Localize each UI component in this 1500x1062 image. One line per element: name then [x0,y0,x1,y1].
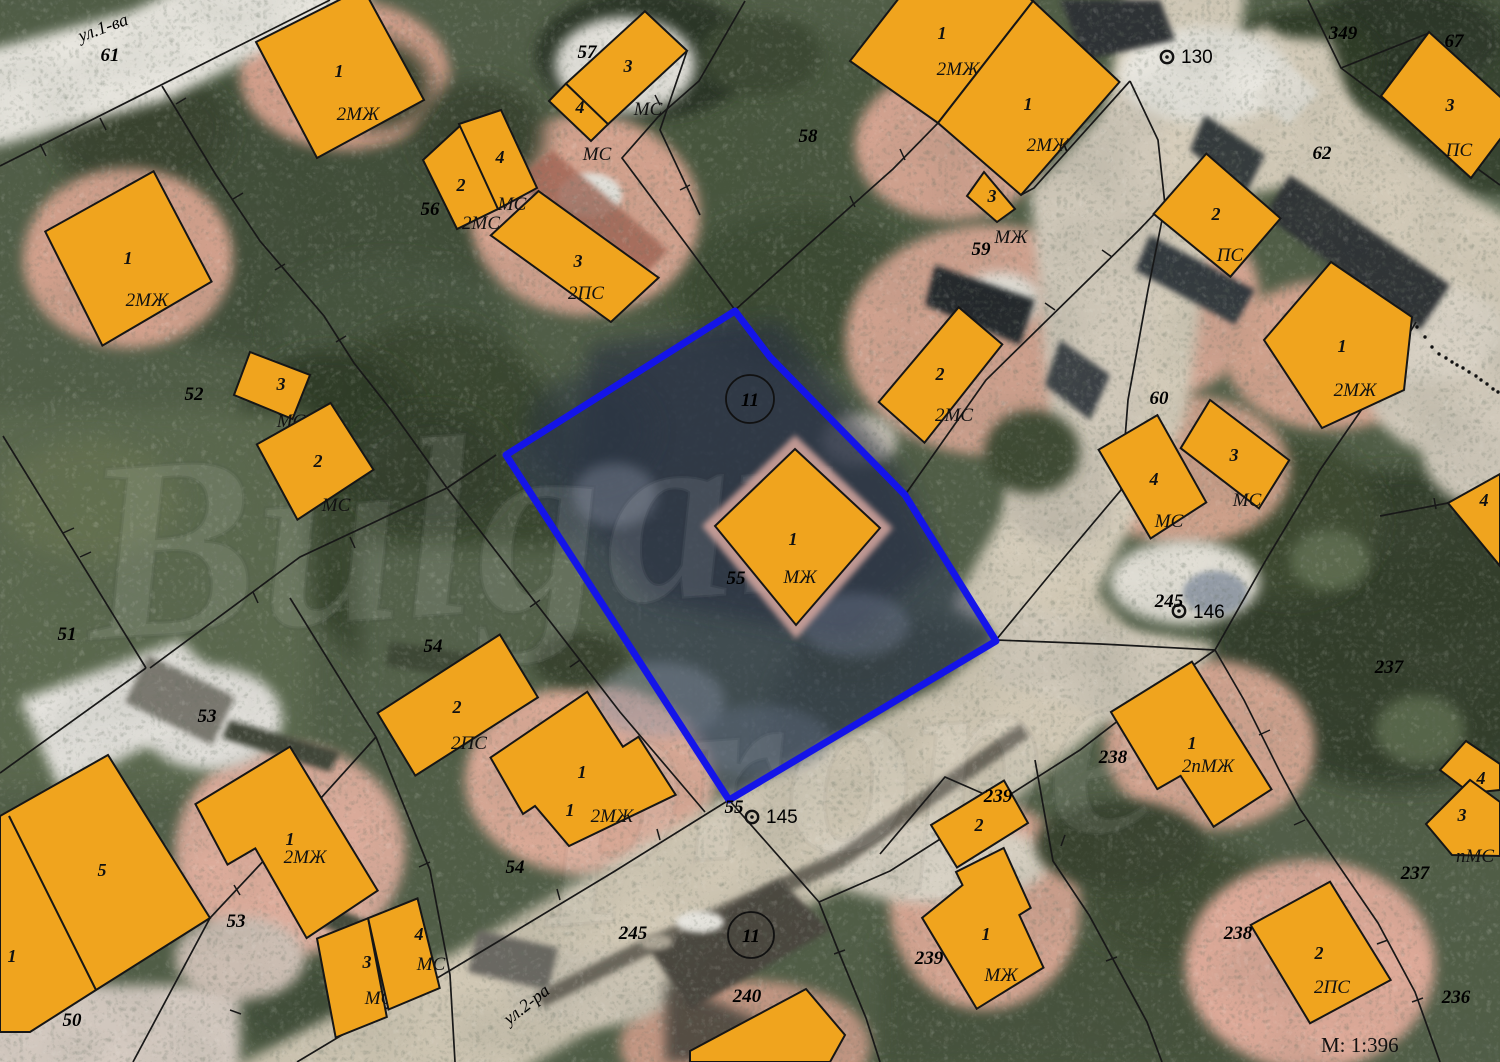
svg-text:3: 3 [276,374,286,394]
svg-text:11: 11 [741,390,759,411]
svg-text:1: 1 [938,23,947,43]
svg-text:4: 4 [414,924,424,944]
svg-text:1: 1 [982,924,991,944]
svg-text:62: 62 [1313,143,1333,164]
svg-text:53: 53 [198,706,217,727]
svg-text:3: 3 [1229,445,1239,465]
svg-text:2МС: 2МС [935,405,973,426]
svg-text:МС: МС [321,495,351,516]
svg-text:61: 61 [101,45,120,66]
svg-text:2МЖ: 2МЖ [1027,135,1071,156]
svg-text:1: 1 [124,248,133,268]
svg-text:240: 240 [732,986,762,1007]
svg-text:11: 11 [742,926,760,947]
svg-text:2МЖ: 2МЖ [1334,380,1378,401]
svg-text:60: 60 [1150,388,1170,409]
svg-text:5: 5 [98,860,107,880]
svg-text:52: 52 [185,384,205,405]
svg-text:МС: МС [1232,490,1262,511]
svg-text:ПС: ПС [1445,140,1473,161]
svg-text:1: 1 [1338,336,1347,356]
svg-text:2пМЖ: 2пМЖ [1182,756,1236,777]
svg-text:130: 130 [1181,47,1213,68]
svg-text:3: 3 [573,251,583,271]
svg-text:2МЖ: 2МЖ [337,104,381,125]
svg-text:МЖ: МЖ [993,227,1029,248]
svg-text:1: 1 [789,529,798,549]
svg-text:2: 2 [1314,943,1324,963]
svg-text:236: 236 [1441,987,1471,1008]
svg-text:2МЖ: 2МЖ [591,806,635,827]
svg-text:2: 2 [313,451,323,471]
svg-text:4: 4 [1149,469,1159,489]
svg-text:2: 2 [452,697,462,717]
svg-text:2: 2 [1211,204,1221,224]
svg-text:50: 50 [63,1010,83,1031]
svg-text:1: 1 [8,946,17,966]
svg-text:54: 54 [506,857,525,878]
svg-text:56: 56 [421,199,441,220]
svg-text:55: 55 [727,568,747,589]
svg-text:1: 1 [578,762,587,782]
svg-text:МС: МС [497,194,527,215]
svg-text:2МЖ: 2МЖ [126,290,170,311]
svg-text:67: 67 [1445,31,1466,52]
svg-text:54: 54 [424,636,443,657]
svg-text:4: 4 [575,97,585,117]
svg-text:239: 239 [983,786,1013,807]
svg-text:3: 3 [1445,95,1455,115]
svg-text:237: 237 [1374,657,1405,678]
svg-text:2: 2 [456,175,466,195]
svg-text:58: 58 [799,126,819,147]
svg-text:4: 4 [1479,490,1489,510]
svg-text:МЖ: МЖ [782,567,818,588]
svg-text:237: 237 [1400,863,1431,884]
svg-text:3: 3 [623,56,633,76]
svg-text:ПС: ПС [1216,245,1244,266]
svg-text:2: 2 [974,815,984,835]
svg-text:3: 3 [1457,805,1467,825]
svg-text:2: 2 [935,364,945,384]
svg-text:1: 1 [1188,733,1197,753]
svg-text:238: 238 [1223,923,1253,944]
svg-text:2ПС: 2ПС [1314,977,1350,998]
svg-text:МЖ: МЖ [983,965,1019,986]
svg-text:238: 238 [1098,747,1128,768]
svg-text:4: 4 [495,147,505,167]
svg-text:59: 59 [972,239,992,260]
svg-text:МС: МС [1154,511,1184,532]
svg-text:2ПС: 2ПС [568,283,604,304]
svg-text:2МЖ: 2МЖ [284,847,328,868]
svg-text:57: 57 [578,42,599,63]
svg-text:1: 1 [286,829,295,849]
svg-text:1: 1 [335,61,344,81]
svg-text:МС: МС [416,954,446,975]
svg-text:МС: МС [633,99,663,120]
svg-text:239: 239 [914,948,944,969]
svg-text:3: 3 [987,186,997,206]
svg-text:349: 349 [1328,23,1358,44]
svg-text:145: 145 [766,807,798,828]
svg-text:245: 245 [618,923,648,944]
svg-text:55: 55 [725,797,745,818]
svg-text:146: 146 [1193,602,1225,623]
svg-text:МС: МС [582,144,612,165]
svg-text:1: 1 [566,800,575,820]
svg-text:245: 245 [1154,591,1184,612]
svg-text:1: 1 [1024,94,1033,114]
svg-text:51: 51 [58,624,77,645]
svg-text:пМС: пМС [1456,846,1494,867]
svg-text:53: 53 [227,911,246,932]
svg-text:М: 1:396: М: 1:396 [1321,1033,1399,1057]
svg-text:2ПС: 2ПС [451,733,487,754]
svg-text:2МС: 2МС [462,213,500,234]
svg-text:3: 3 [362,952,372,972]
